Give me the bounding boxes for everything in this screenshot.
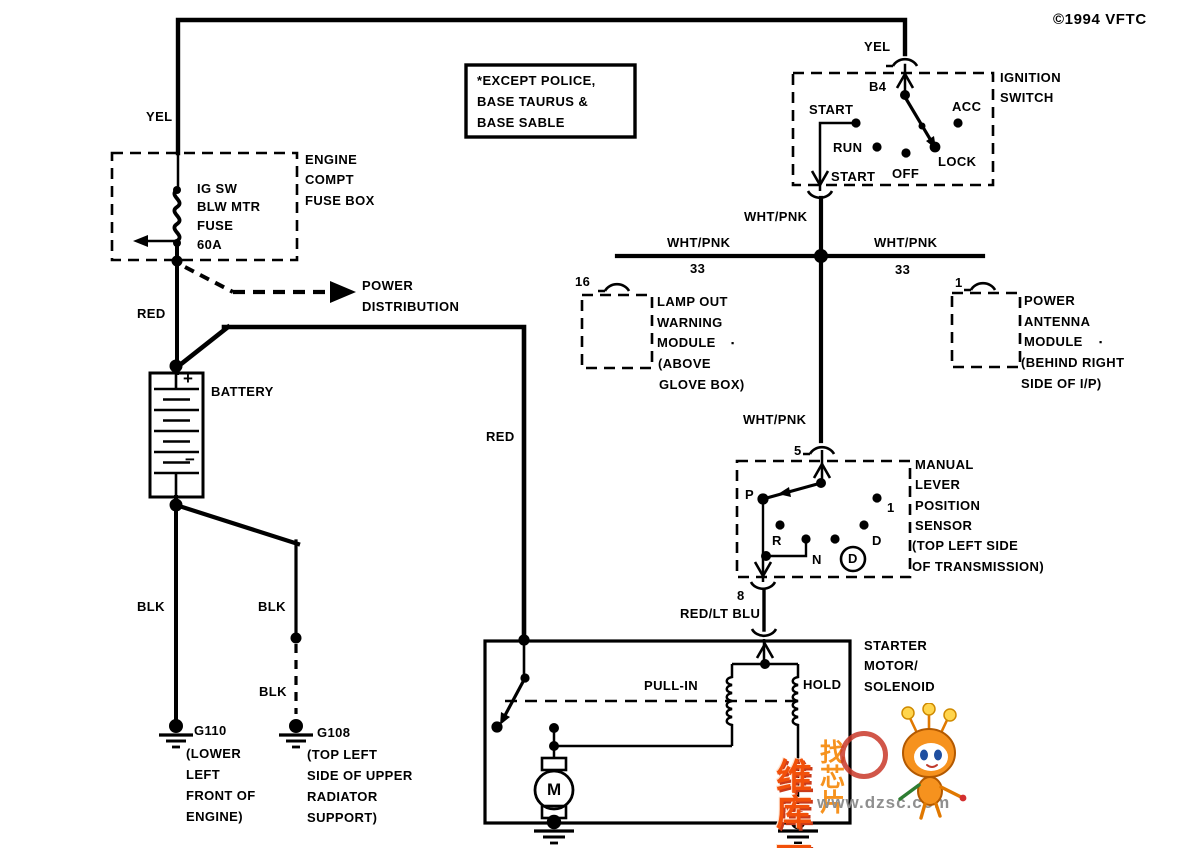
- circuit-33-left: 33: [690, 262, 705, 276]
- starter-title-2: MOTOR/: [864, 659, 918, 673]
- ignition-title-1: IGNITION: [1000, 71, 1061, 85]
- mlps-pos-od: D: [848, 552, 858, 566]
- antenna-module-line-3: MODULE: [1024, 335, 1083, 349]
- wire-label-whtpnk-left: WHT/PNK: [667, 236, 730, 250]
- ignition-pos-acc: ACC: [952, 100, 981, 114]
- fuse-label-3: FUSE: [197, 219, 233, 233]
- note-line-2: BASE TAURUS &: [477, 95, 588, 109]
- wire-label-red-left: RED: [137, 307, 166, 321]
- power-distribution-1: POWER: [362, 279, 413, 293]
- mlps-pos-1: 1: [887, 501, 895, 515]
- ground-g110-desc-4: ENGINE): [186, 810, 243, 824]
- mlps-pin-in: 5: [794, 444, 802, 458]
- battery-minus: −: [185, 451, 195, 470]
- antenna-module-footnote-marker: ▪: [1099, 338, 1103, 348]
- power-distribution-2: DISTRIBUTION: [362, 300, 459, 314]
- ground-g110-desc-3: FRONT OF: [186, 789, 256, 803]
- ground-g108-desc-2: SIDE OF UPPER: [307, 769, 413, 783]
- lamp-module-line-2: WARNING: [657, 316, 723, 330]
- wire-label-yel-main: YEL: [146, 110, 172, 124]
- battery-label: BATTERY: [211, 385, 274, 399]
- note-line-1: *EXCEPT POLICE,: [477, 74, 596, 88]
- mlps-line-1: MANUAL: [915, 458, 974, 472]
- mascot-icon: [888, 703, 970, 825]
- lamp-module-footnote-marker: ▪: [731, 339, 735, 349]
- magnifier-ring-icon: [840, 731, 888, 779]
- lamp-module-line-3: MODULE: [657, 336, 716, 350]
- wire-label-red-feed: RED: [486, 430, 515, 444]
- ignition-title-2: SWITCH: [1000, 91, 1054, 105]
- wire-label-blk-g110: BLK: [137, 600, 165, 614]
- copyright-text: ©1994 VFTC: [1053, 12, 1147, 29]
- antenna-module-line-2: ANTENNA: [1024, 315, 1090, 329]
- mlps-pos-n: N: [812, 553, 822, 567]
- mlps-pin-out: 8: [737, 589, 745, 603]
- watermark-brand: 维库一下: [776, 759, 815, 848]
- mlps-line-3: POSITION: [915, 499, 980, 513]
- mlps-pos-d: D: [872, 534, 882, 548]
- ignition-terminal-b4: B4: [869, 80, 886, 94]
- wire-label-whtpnk-right: WHT/PNK: [874, 236, 937, 250]
- antenna-module-line-5: SIDE OF I/P): [1021, 377, 1102, 391]
- wire-label-blk-g108-a: BLK: [258, 600, 286, 614]
- antenna-module-pin: 1: [955, 276, 963, 290]
- wire-label-blk-g108-b: BLK: [259, 685, 287, 699]
- ignition-pos-off: OFF: [892, 167, 919, 181]
- circuit-33-right: 33: [895, 263, 910, 277]
- starter-hold-coil-label: HOLD: [803, 678, 841, 692]
- fuse-box-title-1: ENGINE: [305, 153, 357, 167]
- ground-g108-desc-1: (TOP LEFT: [307, 748, 377, 762]
- wire-label-yel-ignition: YEL: [864, 40, 890, 54]
- fuse-label-2: BLW MTR: [197, 200, 260, 214]
- mlps-line-2: LEVER: [915, 478, 960, 492]
- antenna-module-line-1: POWER: [1024, 294, 1075, 308]
- mlps-line-6: OF TRANSMISSION): [912, 560, 1044, 574]
- note-line-3: BASE SABLE: [477, 116, 565, 130]
- starter-title-3: SOLENOID: [864, 680, 935, 694]
- ground-g108-desc-4: SUPPORT): [307, 811, 377, 825]
- ignition-pos-run: RUN: [833, 141, 862, 155]
- ground-g110-desc-2: LEFT: [186, 768, 220, 782]
- fuse-box-title-2: COMPT: [305, 173, 354, 187]
- wiring-diagram-page: ©1994 VFTC *EXCEPT POLICE, BASE TAURUS &…: [0, 0, 1202, 848]
- battery-plus: +: [183, 370, 193, 389]
- diagram-linework: [0, 0, 1202, 848]
- ground-g110-code: G110: [194, 724, 227, 738]
- fuse-label-1: IG SW: [197, 182, 237, 196]
- starter-pullin-coil-label: PULL-IN: [644, 679, 698, 693]
- mlps-line-4: SENSOR: [915, 519, 972, 533]
- ignition-output-start: START: [831, 170, 875, 184]
- mlps-pos-r: R: [772, 534, 782, 548]
- wire-label-whtpnk-trunk: WHT/PNK: [744, 210, 807, 224]
- ground-g108-code: G108: [317, 726, 350, 740]
- fuse-box-title-3: FUSE BOX: [305, 194, 375, 208]
- mlps-line-5: (TOP LEFT SIDE: [912, 539, 1018, 553]
- mlps-pos-p: P: [745, 488, 754, 502]
- antenna-module-line-4: (BEHIND RIGHT: [1021, 356, 1124, 370]
- ignition-pos-start: START: [809, 103, 853, 117]
- starter-title-1: STARTER: [864, 639, 927, 653]
- starter-motor-m: M: [547, 781, 562, 800]
- lamp-module-pin: 16: [575, 275, 590, 289]
- lamp-module-line-4: (ABOVE: [658, 357, 711, 371]
- wire-label-redltblu: RED/LT BLU: [680, 607, 760, 621]
- lamp-module-line-5: GLOVE BOX): [659, 378, 745, 392]
- ground-g110-desc-1: (LOWER: [186, 747, 241, 761]
- ground-g108-desc-3: RADIATOR: [307, 790, 378, 804]
- ignition-pos-lock: LOCK: [938, 155, 976, 169]
- wire-label-whtpnk-mlps: WHT/PNK: [743, 413, 806, 427]
- fuse-rating: 60A: [197, 238, 222, 252]
- lamp-module-line-1: LAMP OUT: [657, 295, 728, 309]
